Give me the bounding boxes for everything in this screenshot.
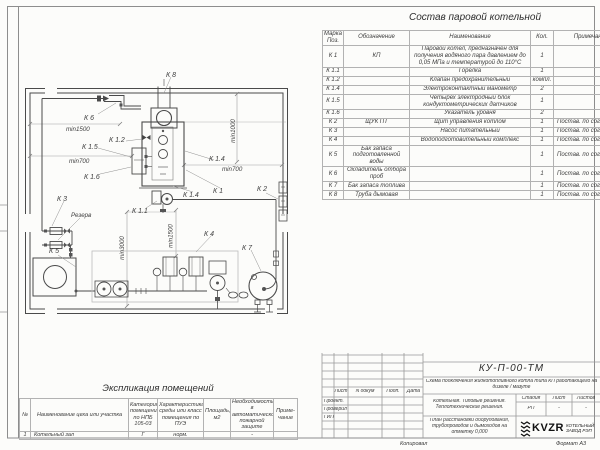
format-label: Формат А3 bbox=[556, 441, 586, 447]
cell-mark: К 8 bbox=[323, 191, 344, 200]
water-tank-symbol bbox=[33, 258, 95, 296]
cell-shop-name: Котельный зал bbox=[31, 431, 129, 439]
cell-code: ЩУК ПТ bbox=[344, 118, 410, 127]
header-note: Примечание bbox=[554, 31, 600, 46]
table-row: К 5Бак запаса подготовленной воды1Постав… bbox=[323, 145, 600, 167]
cell-mark: К 1.4 bbox=[323, 85, 344, 94]
cell-name: Электроконтактный манометр bbox=[410, 85, 531, 94]
label-min3000: min3000 bbox=[119, 236, 126, 260]
label-k12: К 1.2 bbox=[109, 137, 125, 144]
header-code: Обозначение bbox=[344, 31, 410, 46]
table-row: К 1.6Указатель уровня2 bbox=[323, 109, 600, 118]
safety-valve-symbol bbox=[143, 135, 151, 140]
col-date: Дата bbox=[404, 389, 423, 395]
cell-code: Бак запаса топлива bbox=[344, 182, 410, 191]
label-k4: К 4 bbox=[204, 231, 214, 238]
label-k11: К 1.1 bbox=[132, 208, 148, 215]
table-row: К 1.2Клапан предохранительныйкомпл. bbox=[323, 76, 600, 85]
role-checked: Проверил bbox=[324, 407, 364, 413]
cell-note bbox=[554, 76, 600, 85]
cell-area bbox=[204, 431, 231, 439]
label-k6: К 6 bbox=[84, 115, 94, 122]
cell-note bbox=[554, 45, 600, 67]
label-min1000: min1000 bbox=[230, 119, 237, 143]
header-mark: Марка Поз. bbox=[323, 31, 344, 46]
label-k2: К 2 bbox=[257, 186, 267, 193]
table-row: К 6Охладитель отбора проб1Постав. по сог… bbox=[323, 167, 600, 182]
col-sheet: Лист bbox=[334, 389, 348, 395]
copied-label: Копировал bbox=[400, 441, 427, 447]
sheets-value: - bbox=[572, 406, 600, 412]
role-gip: ГИП bbox=[324, 415, 364, 421]
cell-code: Труба дымовая bbox=[344, 191, 410, 200]
cell-code bbox=[344, 136, 410, 145]
cell-mark: К 4 bbox=[323, 136, 344, 145]
cell-mark: К 7 bbox=[323, 182, 344, 191]
label-k1: К 1 bbox=[213, 188, 223, 195]
table-row: К 1.1Горелка1 bbox=[323, 67, 600, 76]
company-name: КОТЕЛЬНЫЙ ЗАВОД РЭП bbox=[566, 423, 599, 434]
explication-table-title: Экспликация помещений bbox=[19, 383, 297, 394]
stage-value: РП bbox=[516, 406, 546, 412]
cell-mark: К 6 bbox=[323, 167, 344, 182]
table-row: 1 Котельный зал Г норм. - bbox=[20, 431, 298, 439]
cell-code bbox=[344, 76, 410, 85]
label-k5: К 5 bbox=[49, 248, 59, 255]
cell-note: Постав. по согласов. bbox=[554, 145, 600, 167]
cell-name bbox=[410, 145, 531, 167]
label-k7: К 7 bbox=[242, 245, 253, 252]
cell-name: Насос питательный bbox=[410, 127, 531, 136]
sheet-value: - bbox=[546, 406, 572, 412]
cell-qty: 1 bbox=[531, 94, 554, 109]
header-note: Приме- чание bbox=[274, 399, 298, 432]
col-doc: N докум bbox=[348, 389, 382, 395]
label-min1500-b: min1500 bbox=[168, 224, 175, 248]
cell-qty: 1 bbox=[531, 45, 554, 67]
cell-note bbox=[554, 85, 600, 94]
header-environment: Характеристика среды или класс помещения… bbox=[158, 399, 204, 432]
sheet-name: План расстановки оборудования, трубопров… bbox=[425, 418, 514, 435]
cell-qty: 1 bbox=[531, 191, 554, 200]
composition-table: Марка Поз. Обозначение Наименование Кол.… bbox=[322, 30, 600, 200]
cell-name: Водоподготовительный комплекс bbox=[410, 136, 531, 145]
cell-qty: 1 bbox=[531, 136, 554, 145]
table-row: К 3Насос питательный1Постав. по согласов… bbox=[323, 127, 600, 136]
cell-name: Горелка bbox=[410, 67, 531, 76]
document-name: Схема подключения жидкотопливного котла … bbox=[425, 379, 598, 391]
cell-category: Г bbox=[129, 431, 158, 439]
table-row: К 1КППаровой котел, предназначен для пол… bbox=[323, 45, 600, 67]
label-min700-l: min700 bbox=[69, 158, 90, 165]
table-row: К 8Труба дымовая1Постав. по согласов. bbox=[323, 191, 600, 200]
cell-mark: К 1 bbox=[323, 45, 344, 67]
sheets-label: Листов bbox=[572, 396, 600, 402]
role-project: Проект. bbox=[324, 399, 364, 405]
cell-qty: 1 bbox=[531, 118, 554, 127]
label-rezerv: Резерв bbox=[71, 212, 92, 219]
label-k8: К 8 bbox=[166, 72, 176, 79]
header-shop-name: Наименование цеха или участка bbox=[31, 399, 129, 432]
cell-note: Постав. по согласов. bbox=[554, 118, 600, 127]
label-k15: К 1.5 bbox=[82, 144, 98, 151]
cell-qty: 2 bbox=[531, 109, 554, 118]
label-k14-b: К 1.4 bbox=[183, 192, 199, 199]
cell-note: Постав. по согласов. bbox=[554, 167, 600, 182]
cell-note: Постав. по согласов. bbox=[554, 191, 600, 200]
cell-note bbox=[554, 67, 600, 76]
cell-name: Четырех электродный блок кондуктометриче… bbox=[410, 94, 531, 109]
table-row: К 4Водоподготовительный комплекс1Постав.… bbox=[323, 136, 600, 145]
fold-marks bbox=[0, 205, 7, 312]
cell-mark: К 1.1 bbox=[323, 67, 344, 76]
header-area: Площадь, м2 bbox=[204, 399, 231, 432]
company-logo: KVZR КОТЕЛЬНЫЙ ЗАВОД РЭП bbox=[519, 419, 599, 437]
label-k14-a: К 1.4 bbox=[209, 156, 225, 163]
table-row: К 1.5Четырех электродный блок кондуктоме… bbox=[323, 94, 600, 109]
header-fire-protection: Необходимость в автоматической пожарной … bbox=[231, 399, 274, 432]
cell-qty: 1 bbox=[531, 127, 554, 136]
cell-qty: 2 bbox=[531, 85, 554, 94]
cell-name bbox=[410, 182, 531, 191]
cell-environment: норм. bbox=[158, 431, 204, 439]
col-sign: Подп. bbox=[382, 389, 404, 395]
cell-name bbox=[410, 191, 531, 200]
header-name: Наименование bbox=[410, 31, 531, 46]
cell-mark: К 2 bbox=[323, 118, 344, 127]
cell-note: Постав. по согласов. bbox=[554, 136, 600, 145]
cell-mark: К 1.2 bbox=[323, 76, 344, 85]
cell-note bbox=[554, 109, 600, 118]
cell-name: Указатель уровня bbox=[410, 109, 531, 118]
label-min1500-a: min1500 bbox=[66, 126, 90, 133]
cell-name bbox=[410, 167, 531, 182]
label-k3: К 3 bbox=[57, 196, 67, 203]
document-code: КУ-П-00-ТМ bbox=[423, 363, 600, 374]
sheet-label: Лист bbox=[546, 396, 572, 402]
table-row: К 2ЩУК ПТЩит управления котлом1Постав. п… bbox=[323, 118, 600, 127]
cell-num: 1 bbox=[20, 431, 31, 439]
table-header-row: № Наименование цеха или участка Категори… bbox=[20, 399, 298, 432]
cell-fire-protection: - bbox=[231, 431, 274, 439]
cell-code: Охладитель отбора проб bbox=[344, 167, 410, 182]
composition-table-title: Состав паровой котельной bbox=[322, 12, 600, 23]
cell-note: Постав. по согласов. bbox=[554, 127, 600, 136]
cell-note: Постав. по согласов. bbox=[554, 182, 600, 191]
header-category: Категория помещения по НПБ 105-03 bbox=[129, 399, 158, 432]
label-min700-r: min700 bbox=[222, 166, 243, 173]
explication-table: № Наименование цеха или участка Категори… bbox=[19, 398, 298, 440]
table-row: К 1.4Электроконтактный манометр2 bbox=[323, 85, 600, 94]
cell-code bbox=[344, 127, 410, 136]
table-row: К 7Бак запаса топлива1Постав. по согласо… bbox=[323, 182, 600, 191]
cell-mark: К 1.5 bbox=[323, 94, 344, 109]
cell-qty: 1 bbox=[531, 145, 554, 167]
cell-code: КП bbox=[344, 45, 410, 67]
drawing-sheet: { "composition": { "title": "Состав паро… bbox=[0, 0, 600, 450]
cell-code bbox=[344, 67, 410, 76]
company-logo-text: KVZR bbox=[532, 422, 564, 434]
cell-mark: К 5 bbox=[323, 145, 344, 167]
cell-note bbox=[554, 94, 600, 109]
cell-name: Паровой котел, предназначен для получени… bbox=[410, 45, 531, 67]
label-k16: К 1.6 bbox=[84, 174, 100, 181]
stage-label: Стадия bbox=[516, 396, 546, 402]
header-qty: Кол. bbox=[531, 31, 554, 46]
cell-qty: 1 bbox=[531, 67, 554, 76]
chimney-symbol bbox=[151, 79, 177, 128]
cell-qty: 1 bbox=[531, 167, 554, 182]
cell-name: Щит управления котлом bbox=[410, 118, 531, 127]
cell-mark: К 3 bbox=[323, 127, 344, 136]
table-header-row: Марка Поз. Обозначение Наименование Кол.… bbox=[323, 31, 600, 46]
cell-code: Бак запаса подготовленной воды bbox=[344, 145, 410, 167]
cell-name: Клапан предохранительный bbox=[410, 76, 531, 85]
water-treatment-symbol bbox=[92, 251, 248, 309]
cell-code bbox=[344, 85, 410, 94]
cell-qty: компл. bbox=[531, 76, 554, 85]
cell-code bbox=[344, 94, 410, 109]
project-name: Котельная. Типовые решения. Теплотехниче… bbox=[425, 399, 514, 411]
cell-code bbox=[344, 109, 410, 118]
cell-mark: К 1.6 bbox=[323, 109, 344, 118]
cell-qty: 1 bbox=[531, 182, 554, 191]
header-num: № bbox=[20, 399, 31, 432]
cell-note bbox=[274, 431, 298, 439]
